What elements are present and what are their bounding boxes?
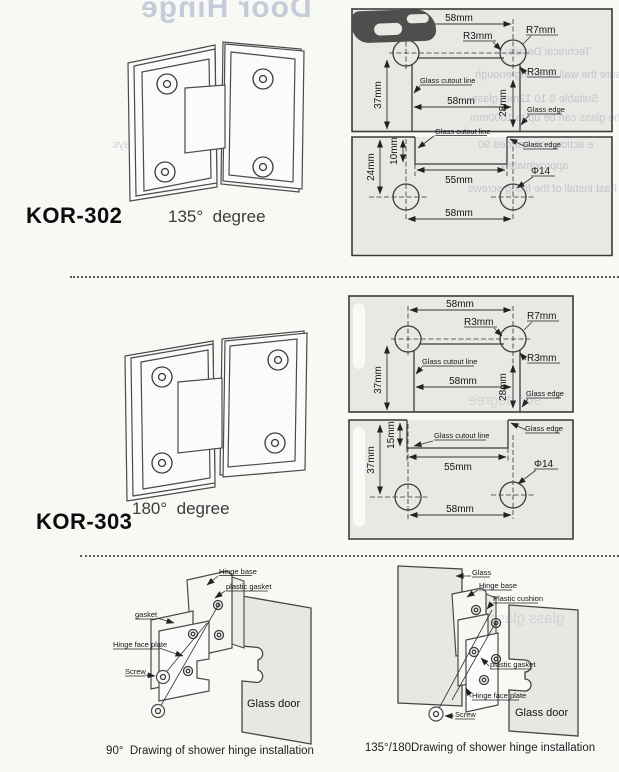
dim-notch-height: 37mm: [366, 446, 377, 474]
glass-cutout-line-label: Glass cutout line: [434, 431, 489, 440]
hinge-base-label: Hinge base: [219, 567, 257, 576]
hole-diameter-label: Φ14: [534, 459, 554, 470]
lower-panel-drawing: Glass cutout line Glass edge 15mm 37mm 5…: [349, 420, 573, 539]
glass-door-label: Glass door: [515, 707, 569, 719]
dim-notch-width: 55mm: [445, 175, 473, 186]
screw-label: Screw: [125, 667, 146, 676]
glass-cutout-line-label: Glass cutout line: [420, 76, 475, 85]
dim-right-height: 28mm: [498, 89, 509, 117]
install-135-180-diagram: Glass Hinge base Plastic cushion plastic…: [392, 560, 619, 752]
dim-left-height: 37mm: [373, 81, 384, 109]
dim-mid-width: 58mm: [447, 96, 475, 107]
lower-panel-drawing: Glass cutout line Glass edge 24mm 10mm 5…: [352, 127, 612, 256]
hinge-face-plate-part: [159, 621, 209, 701]
hole-diameter-label: Φ14: [531, 166, 551, 177]
bleed-title: Door Hinge: [140, 0, 312, 25]
hinge-face-plate-label: Hinge face plate: [472, 691, 526, 700]
glass-edge-label: Glass edge: [523, 140, 561, 149]
dim-notch-depth: 10mm: [389, 137, 400, 165]
dim-mid-width: 58mm: [449, 376, 477, 387]
glass-door-label: Glass door: [247, 698, 301, 710]
radius-label-r3b: R3mm: [527, 67, 556, 78]
plastic-gasket-label: plastic gasket: [226, 582, 272, 591]
hinge-knuckle: [178, 378, 222, 453]
dim-notch-width: 55mm: [444, 462, 472, 473]
hinge-face-plate-label: Hinge face plate: [113, 640, 167, 649]
plastic-cushion-label: Plastic cushion: [493, 594, 543, 603]
upper-panel-drawing: 58mm R3mm R7mm 37mm Glass cutout line 58…: [349, 296, 573, 412]
kor-303-hinge-illustration: [110, 320, 330, 505]
dim-top-width: 58mm: [446, 299, 474, 310]
kor-302-hinge-illustration: [105, 32, 340, 212]
install-135-180-caption: 135°/180Drawing of shower hinge installa…: [345, 742, 615, 754]
screw-label: Screw: [455, 710, 476, 719]
catalog-page: Door Hinge s must be toughened. m in wid…: [0, 0, 619, 772]
dim-notch-height: 24mm: [366, 153, 377, 181]
section-divider: [80, 555, 619, 557]
section-divider: [70, 276, 619, 278]
scan-smudge: [351, 9, 436, 44]
dim-top-width: 58mm: [445, 13, 473, 24]
radius-label-r7: R7mm: [527, 311, 556, 322]
glass-label: Glass: [472, 568, 491, 577]
angle-label-kor-303: 180° degree: [132, 499, 230, 519]
dim-hole-span: 58mm: [445, 208, 473, 219]
radius-label-r3: R3mm: [464, 317, 493, 328]
install-90-caption: 90° Drawing of shower hinge installation: [95, 745, 325, 757]
right-glass-clamp: [221, 42, 304, 192]
model-label-kor-302: KOR-302: [26, 203, 122, 229]
kor-302-cutout-diagram: 58mm R3mm R7mm 37mm Glass cutout line 58…: [351, 8, 613, 260]
dim-notch-depth: 15mm: [386, 421, 397, 449]
glass-cutout-line-label: Glass cutout line: [435, 127, 490, 136]
radius-label-r3: R3mm: [463, 31, 492, 42]
model-label-kor-303: KOR-303: [36, 509, 132, 535]
glass-panel: [398, 566, 462, 706]
radius-label-r7: R7mm: [526, 25, 555, 36]
glass-cutout-line-label: Glass cutout line: [422, 357, 477, 366]
right-glass-clamp: [220, 331, 307, 477]
install-90-diagram: Hinge base plastic gasket gasket Hinge f…: [95, 560, 317, 752]
kor-303-cutout-diagram: 58mm R3mm R7mm 37mm Glass cutout line 58…: [348, 295, 575, 541]
dim-left-height: 37mm: [373, 366, 384, 394]
dim-hole-span: 58mm: [446, 504, 474, 515]
glass-edge-label: Glass edge: [526, 389, 564, 398]
glass-edge-label: Glass edge: [525, 424, 563, 433]
plastic-gasket-label: plastic gasket: [490, 660, 536, 669]
gasket-label: gasket: [135, 610, 158, 619]
hinge-base-label: Hinge base: [479, 581, 517, 590]
hinge-knuckle: [185, 85, 225, 153]
angle-label-kor-302: 135° degree: [168, 207, 266, 227]
dim-right-height: 28mm: [498, 373, 509, 401]
glass-edge-label: Glass edge: [527, 105, 565, 114]
glass-door-panel: [242, 596, 311, 744]
radius-label-r3b: R3mm: [527, 353, 556, 364]
